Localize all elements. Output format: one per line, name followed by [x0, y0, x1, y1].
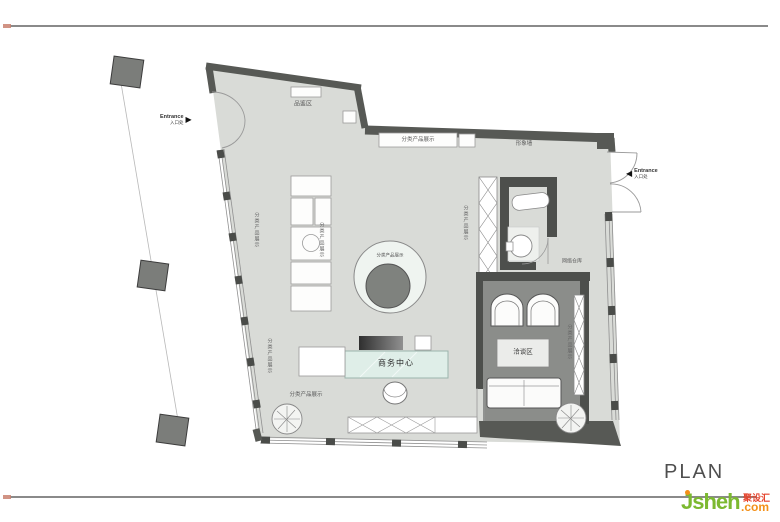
plant-right — [556, 403, 586, 433]
label-display-circle: 分类产品展示 — [377, 254, 404, 259]
logo-dot-icon — [685, 490, 690, 495]
label-meeting-area: 洽谈区 — [513, 348, 533, 355]
page: 品鉴区 分类产品展示 形象墙 分类产品展示 商务中心 洽谈区 网络仓库 分类产品… — [0, 0, 780, 522]
entrance-arrow-left-icon: ◀ — [626, 170, 632, 178]
floor-plan — [0, 0, 780, 522]
entrance-right-zh: 入口处 — [634, 174, 658, 179]
label-display-right: 分类产品展示 — [567, 324, 574, 360]
office-chair — [383, 382, 407, 404]
label-display-bottom: 分类产品展示 — [289, 392, 322, 398]
entrance-callout-left: Entrance 入口处 ▶ — [160, 114, 192, 125]
display-bench-bottom — [348, 417, 477, 433]
label-display-partition: 分类产品展示 — [463, 205, 470, 241]
label-tasting-area: 品鉴区 — [294, 102, 312, 109]
entrance-left-zh: 入口处 — [160, 120, 184, 125]
logo-suffix-text: .com — [741, 500, 769, 514]
label-display-left-upper: 分类产品展示 — [254, 212, 261, 248]
display-shelf-right — [574, 295, 584, 395]
label-business-center: 商务中心 — [378, 360, 414, 369]
desk-return — [359, 336, 403, 350]
meeting-sofa — [487, 378, 561, 408]
plant-left — [272, 404, 302, 434]
label-image-wall: 形象墙 — [516, 141, 533, 147]
label-display-shelf-left: 分类产品展示 — [319, 222, 326, 258]
label-display-left-lower: 分类产品展示 — [267, 338, 274, 374]
label-display-top: 分类产品展示 — [401, 137, 434, 143]
site-logo: Jsheh 聚设汇 .com — [681, 489, 777, 519]
partition-display-wall — [479, 177, 497, 283]
entrance-arrow-right-icon: ▶ — [186, 116, 192, 124]
entrance-callout-right: ◀ Entrance 入口处 — [626, 168, 658, 179]
plan-title: PLAN — [664, 461, 724, 484]
label-network-storage: 网络仓库 — [562, 259, 582, 265]
